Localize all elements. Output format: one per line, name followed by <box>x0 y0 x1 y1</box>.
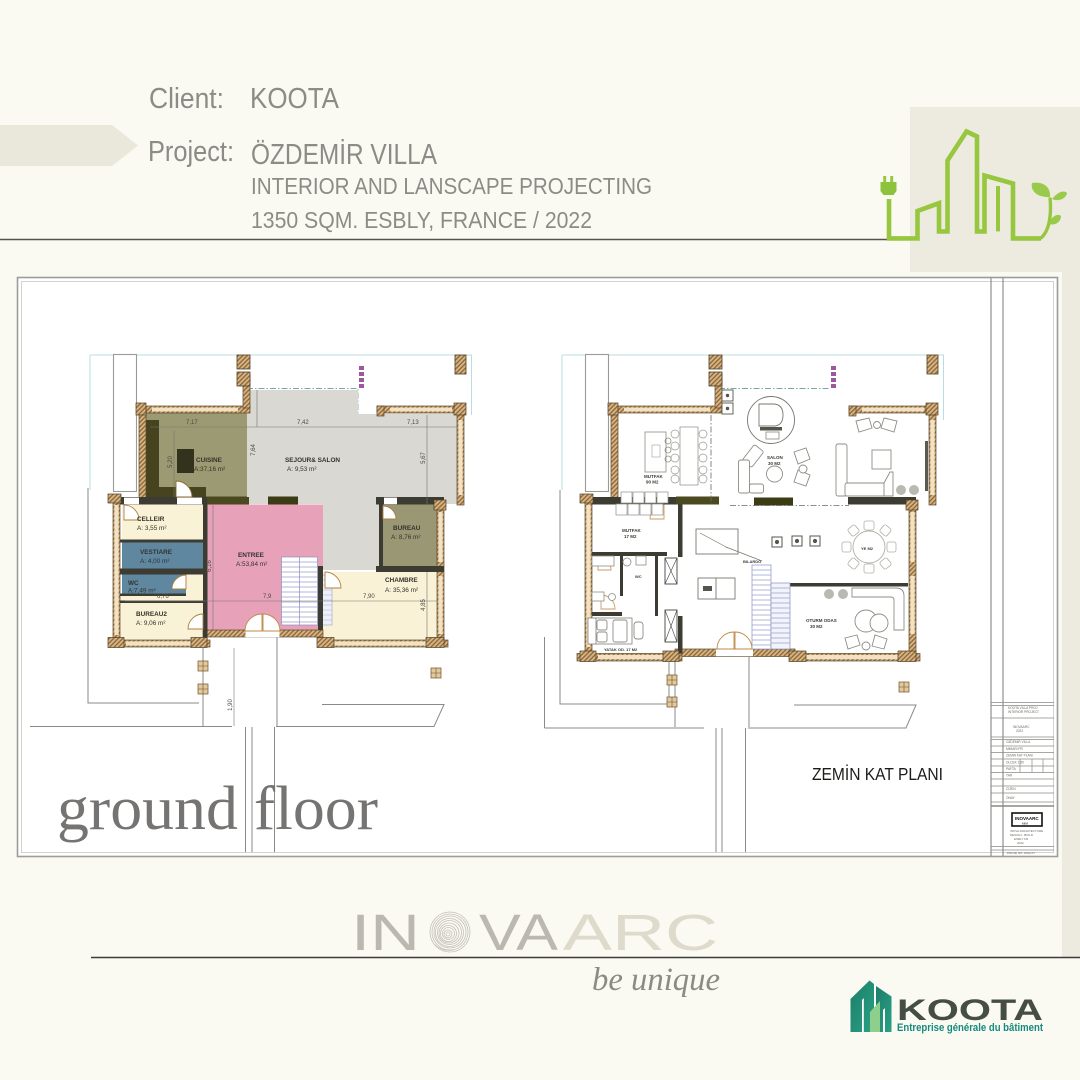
svg-text:CIZEN: CIZEN <box>1006 787 1016 791</box>
svg-text:INTERIOR AND LANSCAPE PROJECTI: INTERIOR AND LANSCAPE PROJECTING <box>251 173 652 199</box>
svg-text:BILARDO: BILARDO <box>743 559 761 564</box>
svg-text:Project:: Project: <box>148 136 234 168</box>
svg-text:7,42: 7,42 <box>297 420 309 426</box>
svg-text:5,67: 5,67 <box>421 452 427 464</box>
svg-text:INOVAARC: INOVAARC <box>1015 816 1039 821</box>
svg-text:2022: 2022 <box>1017 841 1024 845</box>
svg-text:30 M2: 30 M2 <box>768 461 781 466</box>
svg-text:MUTFAK: MUTFAK <box>644 474 663 479</box>
svg-text:A: 9,06 m²: A: 9,06 m² <box>136 620 165 627</box>
svg-text:5,20: 5,20 <box>168 456 174 468</box>
svg-text:ZEMİN KAT PLANI: ZEMİN KAT PLANI <box>812 764 943 784</box>
svg-text:4,85: 4,85 <box>421 599 427 611</box>
svg-text:PAFTA: PAFTA <box>1006 767 1017 771</box>
svg-text:SALON: SALON <box>767 455 783 460</box>
svg-text:A:7,49 m²: A:7,49 m² <box>128 588 156 595</box>
svg-text:PROJE NO: 2022-07: PROJE NO: 2022-07 <box>1007 851 1035 855</box>
svg-text:be unique: be unique <box>592 962 720 998</box>
svg-text:Entreprise générale du bâtimen: Entreprise générale du bâtiment <box>897 1022 1043 1034</box>
svg-text:TAR: TAR <box>1006 774 1013 778</box>
svg-text:BUREAU2: BUREAU2 <box>136 611 167 618</box>
svg-text:VA: VA <box>479 904 558 961</box>
svg-text:7,90: 7,90 <box>363 594 375 600</box>
svg-text:7,9: 7,9 <box>263 594 272 600</box>
svg-text:MUTFAK: MUTFAK <box>622 528 641 533</box>
svg-text:ground floor: ground floor <box>57 775 378 843</box>
svg-text:1,90: 1,90 <box>228 699 234 711</box>
svg-text:IN: IN <box>351 904 420 961</box>
svg-text:MIM: MIM <box>1022 822 1028 826</box>
svg-text:7,64: 7,64 <box>251 444 257 456</box>
svg-text:ZEMIN KAT PLANI: ZEMIN KAT PLANI <box>1006 754 1033 758</box>
svg-text:YE M2: YE M2 <box>861 546 874 551</box>
svg-text:7,13: 7,13 <box>407 420 419 426</box>
svg-text:1350 SQM. ESBLY, FRANCE / 2022: 1350 SQM. ESBLY, FRANCE / 2022 <box>251 207 592 233</box>
svg-text:YATAK OD. 17 M2: YATAK OD. 17 M2 <box>604 647 638 652</box>
svg-text:A:37,16 m²: A:37,16 m² <box>194 466 225 473</box>
svg-text:WC: WC <box>128 580 139 587</box>
svg-text:VESTIARE: VESTIARE <box>140 549 173 556</box>
svg-text:A: 4,00 m²: A: 4,00 m² <box>140 558 169 565</box>
svg-text:90 M2: 90 M2 <box>646 480 659 485</box>
svg-text:OZDEMIR VILLA: OZDEMIR VILLA <box>1006 740 1031 744</box>
svg-text:Client:: Client: <box>149 83 224 115</box>
svg-text:SEJOUR& SALON: SEJOUR& SALON <box>285 457 340 464</box>
svg-text:2022: 2022 <box>1016 729 1023 733</box>
svg-text:A: 35,36 m²: A: 35,36 m² <box>385 587 418 594</box>
svg-text:A: 3,55 m²: A: 3,55 m² <box>137 525 166 532</box>
svg-text:ÖZDEMİR VILLA: ÖZDEMİR VILLA <box>251 138 438 171</box>
svg-text:6,76: 6,76 <box>157 594 169 600</box>
svg-text:ARC: ARC <box>563 904 718 961</box>
svg-text:30 M2: 30 M2 <box>810 624 823 629</box>
svg-text:MIMARI PR: MIMARI PR <box>1006 747 1024 751</box>
svg-text:WC: WC <box>635 574 642 579</box>
svg-text:7,17: 7,17 <box>186 420 198 426</box>
svg-text:OTURM ODAS: OTURM ODAS <box>806 618 837 623</box>
svg-text:INTERIOR PROJECT: INTERIOR PROJECT <box>1008 710 1039 714</box>
svg-text:CHAMBRE: CHAMBRE <box>385 577 418 584</box>
svg-text:CELLEIR: CELLEIR <box>137 516 165 523</box>
svg-text:A:53,84 m²: A:53,84 m² <box>236 561 267 568</box>
svg-text:KOOTA: KOOTA <box>250 83 339 115</box>
svg-text:17 M2: 17 M2 <box>624 534 637 539</box>
svg-text:A: 9,53 m²: A: 9,53 m² <box>287 466 316 473</box>
svg-text:ENTREE: ENTREE <box>238 552 265 559</box>
svg-text:OLCEK 1:50: OLCEK 1:50 <box>1006 761 1024 765</box>
svg-text:BUREAU: BUREAU <box>393 525 421 532</box>
svg-text:6,16: 6,16 <box>207 560 213 572</box>
svg-text:ONAY: ONAY <box>1006 796 1016 800</box>
svg-text:A: 8,76 m²: A: 8,76 m² <box>391 534 420 541</box>
svg-text:CUISINE: CUISINE <box>196 457 223 464</box>
